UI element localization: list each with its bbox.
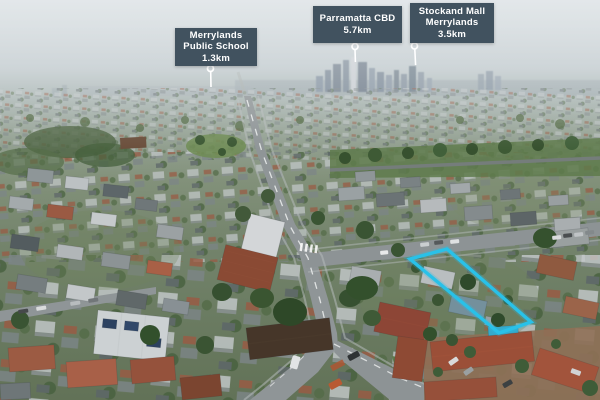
callout-line: Public School [178, 41, 254, 53]
callout-distance: 3.5km [413, 29, 491, 41]
callout-line: Parramatta CBD [316, 13, 399, 25]
aerial-scene [0, 0, 600, 400]
callout-line: Stockand Mall [413, 6, 491, 18]
callout-distance: 1.3km [178, 53, 254, 65]
callout-line: Merrylands [413, 17, 491, 29]
callout-merrylands-public-school: Merrylands Public School 1.3km [175, 28, 257, 66]
aerial-photo: Merrylands Public School 1.3km Parramatt… [0, 0, 600, 400]
callout-stockand-mall: Stockand Mall Merrylands 3.5km [410, 3, 494, 43]
callout-distance: 5.7km [316, 25, 399, 37]
callout-parramatta-cbd: Parramatta CBD 5.7km [313, 6, 402, 43]
callout-line: Merrylands [178, 30, 254, 42]
haze-overlay [0, 0, 600, 150]
